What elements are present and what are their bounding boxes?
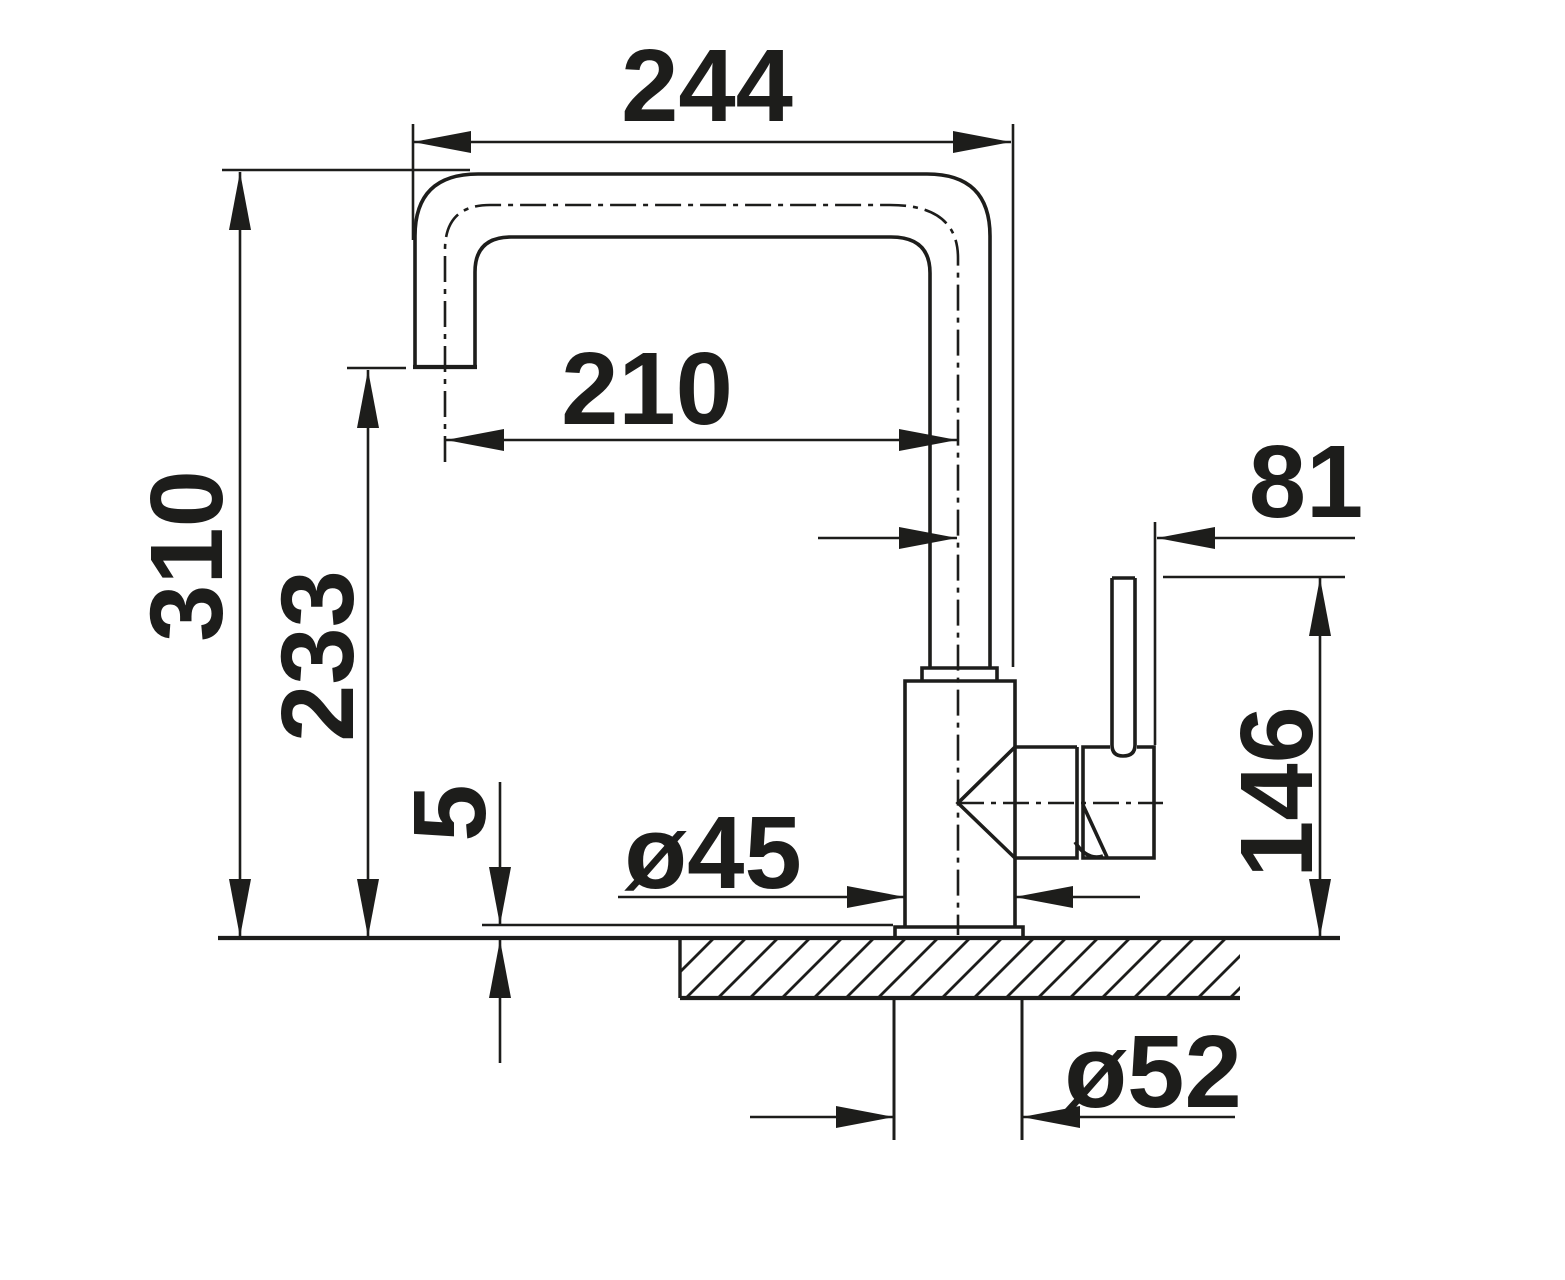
spout-inner-contour bbox=[475, 237, 930, 668]
dimension-labels: 244 210 81 310 233 5 146 ø45 ø52 bbox=[129, 28, 1363, 1129]
arrow-244-left bbox=[413, 131, 471, 153]
label-lever-offset: 81 bbox=[1249, 424, 1364, 539]
mounting-hole-edges bbox=[894, 998, 1022, 1140]
arrow-45-right bbox=[1015, 886, 1073, 908]
label-mounting-hole-diameter: ø52 bbox=[1064, 1014, 1241, 1129]
arrow-210-left bbox=[446, 429, 504, 451]
arrow-81-right bbox=[1157, 527, 1215, 549]
arrow-233-bottom bbox=[357, 879, 379, 937]
riser-collar bbox=[922, 668, 997, 681]
arrow-146-bottom bbox=[1309, 879, 1331, 937]
centerlines bbox=[445, 205, 1163, 935]
label-base-plate-height: 5 bbox=[392, 784, 507, 841]
label-total-reach: 244 bbox=[621, 28, 793, 143]
label-spout-reach: 210 bbox=[561, 331, 733, 446]
label-spout-height: 233 bbox=[260, 570, 375, 742]
label-body-diameter: ø45 bbox=[624, 795, 801, 910]
faucet-dimension-drawing: 244 210 81 310 233 5 146 ø45 ø52 bbox=[0, 0, 1565, 1280]
technical-drawing-page: 244 210 81 310 233 5 146 ø45 ø52 bbox=[0, 0, 1565, 1280]
arrow-5-down bbox=[489, 867, 511, 925]
dimension-lines bbox=[222, 124, 1355, 1117]
arrow-5-up bbox=[489, 940, 511, 998]
lever-rod bbox=[1112, 578, 1135, 756]
arrowheads bbox=[229, 131, 1331, 1128]
lever-pivot-arc bbox=[1075, 842, 1103, 857]
arrow-45-left bbox=[847, 886, 905, 908]
arrow-310-top bbox=[229, 172, 251, 230]
label-total-height: 310 bbox=[129, 470, 244, 642]
label-lever-height: 146 bbox=[1219, 706, 1334, 878]
lever-pivot-line bbox=[1083, 805, 1107, 857]
arrow-81-left bbox=[899, 527, 957, 549]
arrow-210-right bbox=[899, 429, 957, 451]
counter-hatching bbox=[648, 932, 1296, 1004]
arrow-244-right bbox=[953, 131, 1011, 153]
arrow-146-top bbox=[1309, 578, 1331, 636]
arrow-52-left bbox=[836, 1106, 894, 1128]
drawing-root: 244 210 81 310 233 5 146 ø45 ø52 bbox=[129, 28, 1363, 1140]
arrow-310-bottom bbox=[229, 879, 251, 937]
arrow-233-top bbox=[357, 370, 379, 428]
